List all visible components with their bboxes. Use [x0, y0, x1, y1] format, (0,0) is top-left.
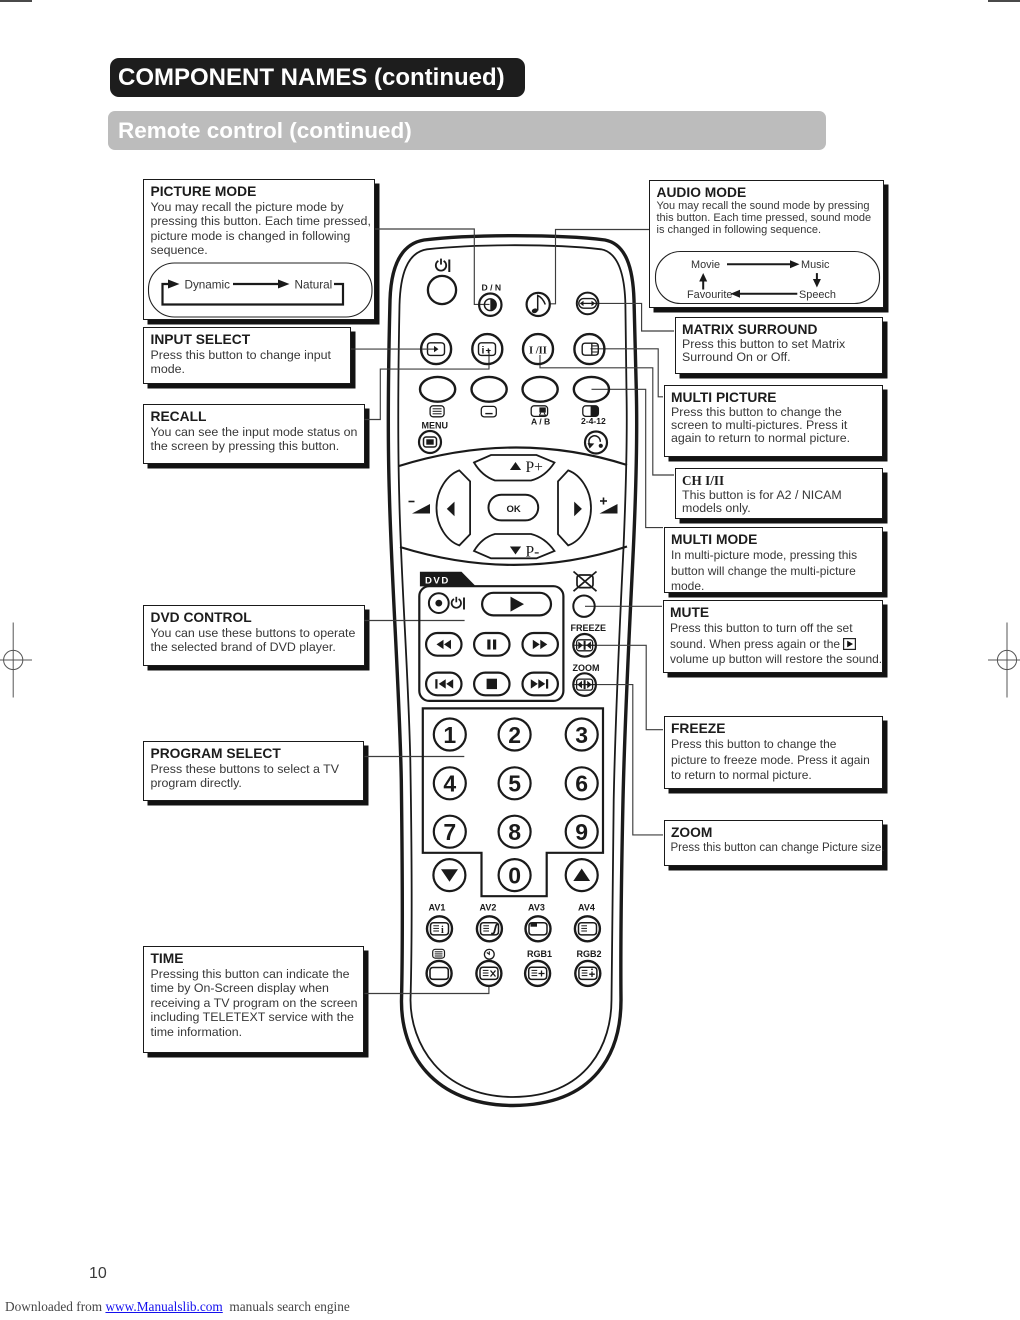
svg-text:RGB1: RGB1 — [527, 949, 552, 959]
svg-text:FREEZE: FREEZE — [571, 623, 607, 633]
svg-text:3: 3 — [575, 722, 588, 748]
svg-text:Natural: Natural — [295, 278, 333, 291]
svg-text:6: 6 — [575, 771, 588, 797]
svg-text:Favourite: Favourite — [687, 289, 732, 301]
svg-text:i: i — [441, 925, 444, 936]
svg-text:D / N: D / N — [482, 283, 502, 293]
svg-text:0: 0 — [508, 862, 521, 888]
svg-text:+: + — [486, 346, 492, 357]
svg-text:RGB2: RGB2 — [577, 949, 602, 959]
svg-text:7: 7 — [443, 819, 456, 845]
svg-text:P-: P- — [526, 544, 540, 561]
svg-text:AV3: AV3 — [528, 903, 545, 913]
svg-text:Movie: Movie — [691, 259, 720, 271]
svg-text:4: 4 — [443, 771, 456, 797]
svg-text:Speech: Speech — [799, 289, 836, 301]
svg-text:DVD: DVD — [425, 575, 450, 586]
svg-text:5: 5 — [508, 771, 521, 797]
svg-text:Dynamic: Dynamic — [185, 278, 231, 291]
svg-text:9: 9 — [575, 819, 588, 845]
svg-text:AV2: AV2 — [480, 903, 497, 913]
svg-text:A / B: A / B — [531, 417, 550, 427]
svg-text:AV4: AV4 — [578, 903, 595, 913]
svg-text:AV1: AV1 — [429, 903, 446, 913]
svg-text:MENU: MENU — [422, 421, 449, 431]
svg-text:2: 2 — [508, 722, 521, 748]
svg-text:i: i — [482, 344, 485, 356]
svg-text:ZOOM: ZOOM — [573, 663, 600, 673]
svg-text:P+: P+ — [526, 459, 543, 476]
svg-text:OK: OK — [507, 504, 521, 515]
svg-text:I /II: I /II — [529, 345, 547, 356]
svg-text:2-4-12: 2-4-12 — [581, 416, 606, 426]
svg-text:Music: Music — [801, 259, 830, 271]
svg-text:8: 8 — [508, 819, 521, 845]
svg-text:1: 1 — [443, 722, 456, 748]
